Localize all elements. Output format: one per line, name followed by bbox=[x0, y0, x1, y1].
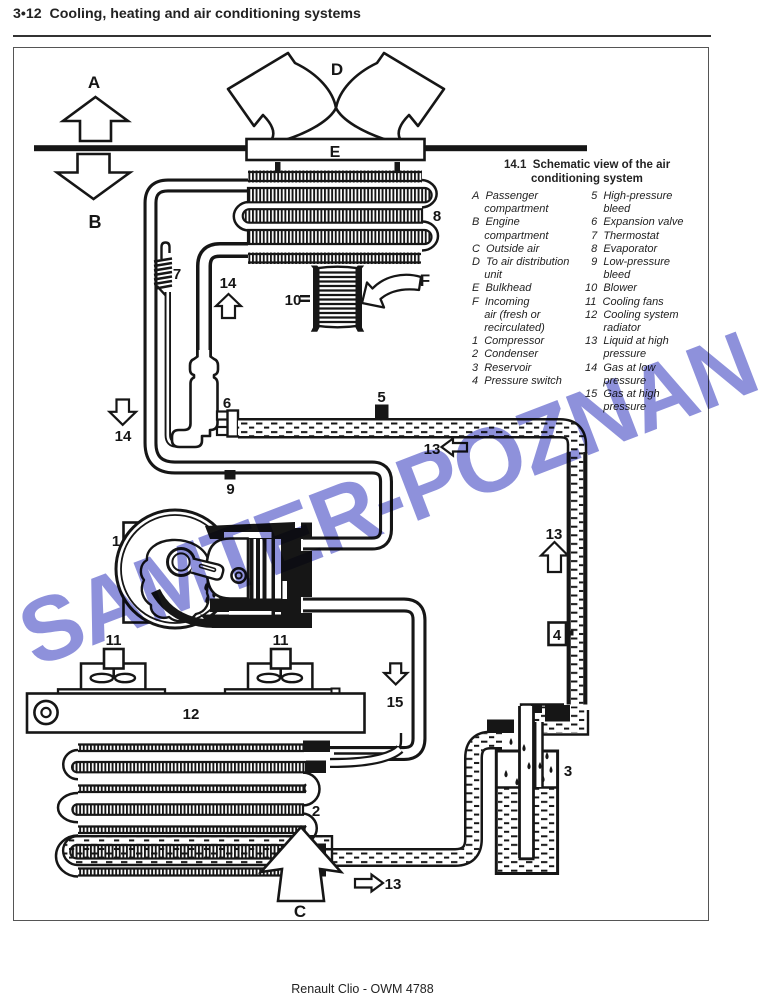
svg-text:12: 12 bbox=[183, 706, 200, 723]
svg-text:2: 2 bbox=[312, 803, 320, 820]
svg-text:F: F bbox=[420, 271, 430, 290]
svg-text:8: 8 bbox=[433, 208, 441, 225]
svg-text:13: 13 bbox=[385, 876, 402, 893]
svg-text:4: 4 bbox=[553, 627, 562, 644]
svg-text:5: 5 bbox=[377, 389, 385, 406]
svg-text:D: D bbox=[331, 60, 343, 79]
svg-text:14: 14 bbox=[220, 275, 237, 292]
svg-text:E: E bbox=[330, 144, 341, 161]
svg-text:B: B bbox=[89, 212, 102, 232]
svg-text:15: 15 bbox=[387, 694, 404, 711]
svg-text:A: A bbox=[88, 73, 100, 92]
svg-text:9: 9 bbox=[226, 481, 234, 498]
svg-text:13: 13 bbox=[546, 526, 563, 543]
svg-text:C: C bbox=[294, 902, 306, 921]
svg-text:6: 6 bbox=[223, 395, 231, 412]
svg-text:7: 7 bbox=[173, 266, 181, 283]
svg-text:11: 11 bbox=[273, 632, 289, 649]
svg-text:14: 14 bbox=[115, 428, 132, 445]
svg-text:10: 10 bbox=[285, 292, 302, 309]
svg-text:3: 3 bbox=[564, 763, 572, 780]
